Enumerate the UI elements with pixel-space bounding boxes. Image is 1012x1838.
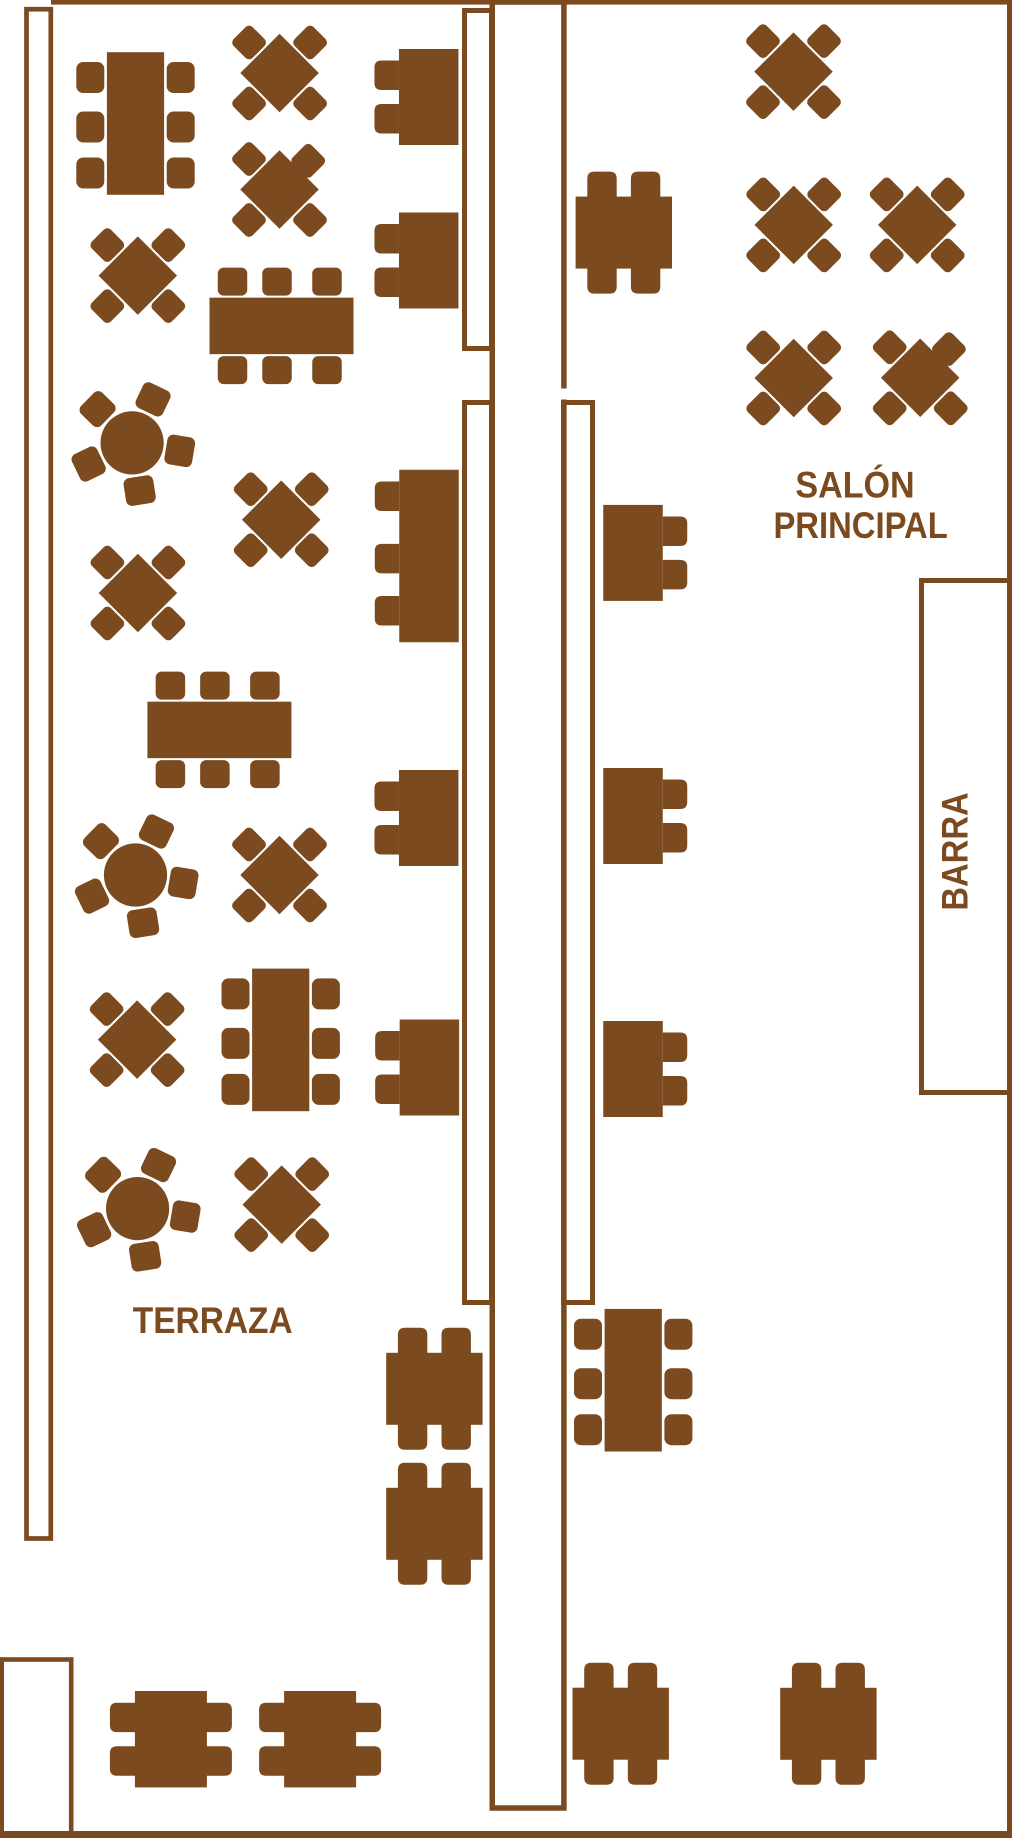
- svg-text:BARRA: BARRA: [934, 792, 975, 910]
- svg-text:PRINCIPAL: PRINCIPAL: [773, 505, 947, 546]
- svg-text:TERRAZA: TERRAZA: [133, 1300, 293, 1341]
- svg-text:SALÓN: SALÓN: [795, 464, 914, 506]
